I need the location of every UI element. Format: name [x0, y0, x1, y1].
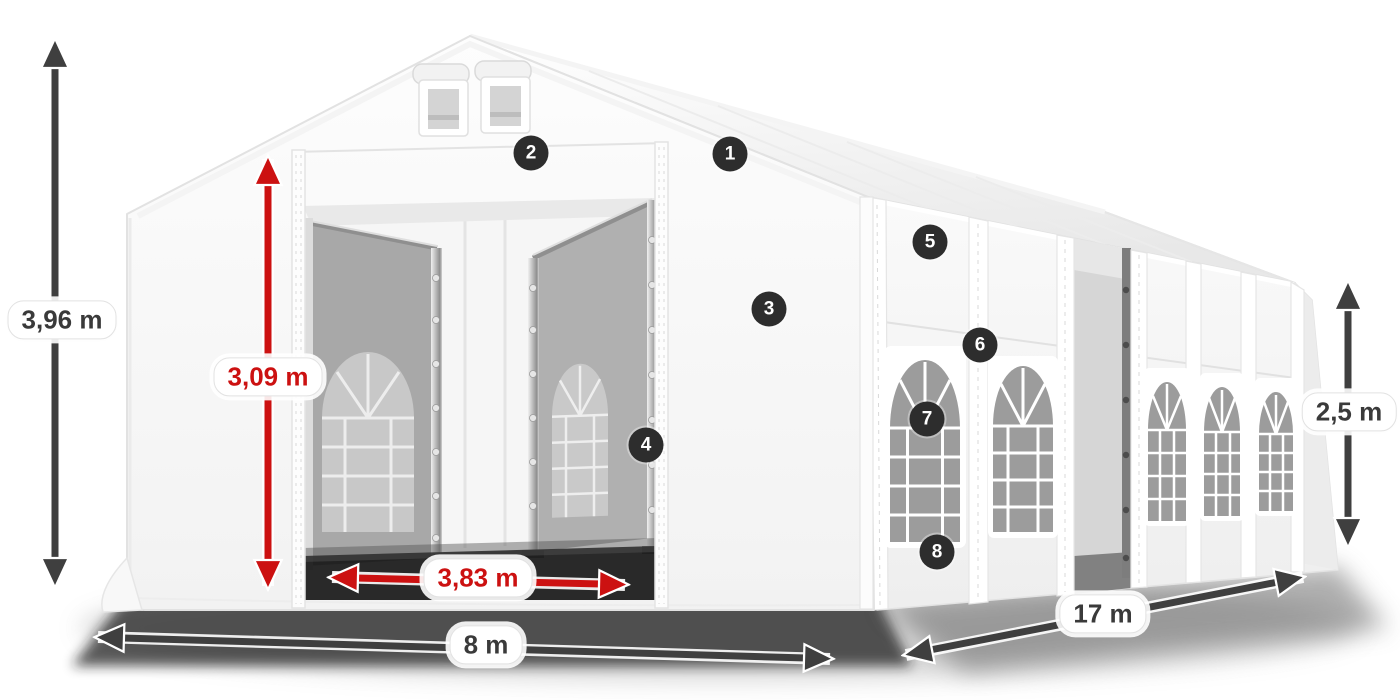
dimension-label-total-height: 3,96 m	[8, 300, 117, 339]
hotspot-badge-2[interactable]: 2	[514, 136, 549, 171]
hotspot-badge-8[interactable]: 8	[920, 535, 955, 570]
hotspot-badge-5[interactable]: 5	[913, 225, 948, 260]
entrance-left-door	[305, 220, 437, 566]
hotspot-badge-4[interactable]: 4	[629, 428, 664, 463]
dimension-label-entrance-height: 3,09 m	[214, 357, 323, 396]
hotspot-badge-6[interactable]: 6	[963, 328, 998, 363]
side-window-3	[1144, 368, 1190, 526]
dimension-label-length: 17 m	[1059, 594, 1146, 633]
side-window-2	[988, 356, 1058, 538]
tent-illustration	[0, 0, 1400, 700]
hotspot-badge-7[interactable]: 7	[910, 402, 945, 437]
marquee-dimension-diagram: 3,96 m 3,09 m 3,83 m 8 m 17 m 2,5 m 1 2 …	[0, 0, 1400, 700]
side-window-4	[1200, 373, 1244, 521]
roof-vent-right	[475, 61, 531, 133]
side-window-5	[1255, 378, 1296, 516]
side-door-opening	[1074, 238, 1131, 594]
dimension-label-width: 8 m	[450, 625, 523, 664]
roof-vent-left	[413, 64, 469, 136]
dimension-label-side-height: 2,5 m	[1302, 392, 1397, 431]
dimension-label-entrance-width: 3,83 m	[424, 558, 533, 597]
entrance-right-door	[533, 199, 652, 552]
hotspot-badge-3[interactable]: 3	[752, 292, 787, 327]
front-door-opening	[303, 198, 664, 600]
hotspot-badge-1[interactable]: 1	[713, 137, 748, 172]
side-door-pole	[1122, 248, 1131, 578]
side-window-1	[884, 346, 966, 548]
